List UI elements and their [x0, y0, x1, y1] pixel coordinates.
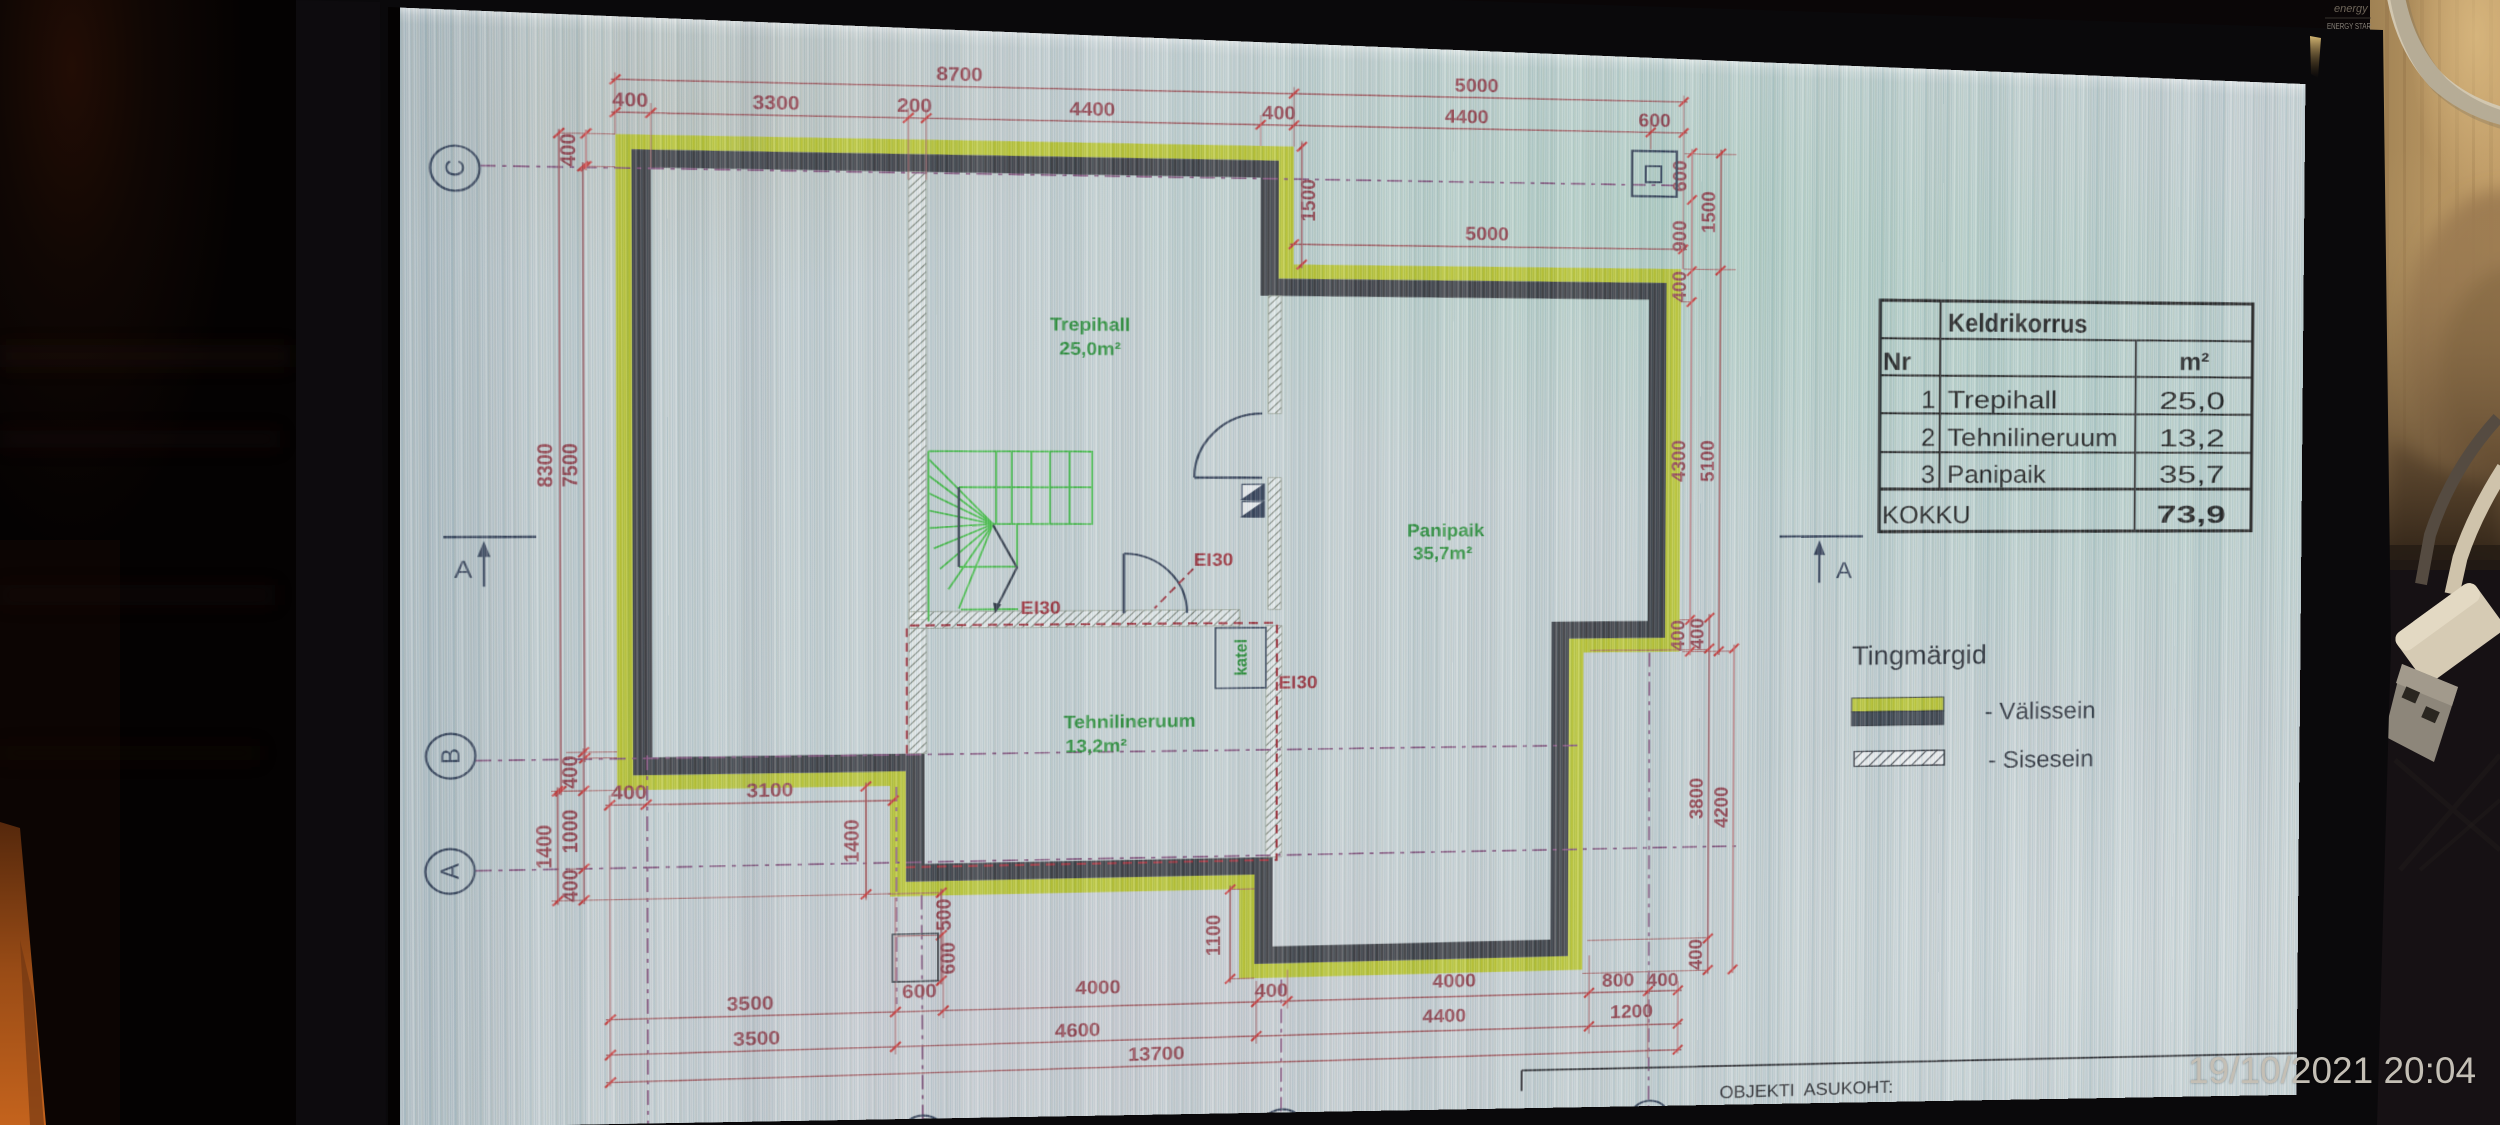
svg-text:ENERGY STAR: ENERGY STAR [2327, 22, 2371, 31]
svg-text:energy: energy [2334, 3, 2369, 15]
